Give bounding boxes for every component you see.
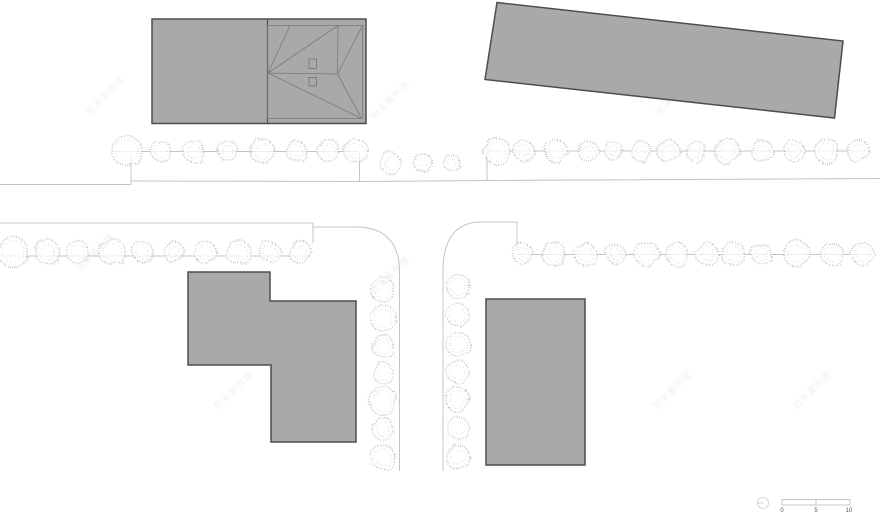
tree — [578, 141, 598, 161]
tree — [574, 243, 596, 265]
tree — [696, 243, 718, 265]
tree — [607, 245, 625, 263]
building-nw-roof-line — [338, 26, 339, 75]
tree — [605, 142, 623, 160]
trees-layer — [0, 136, 874, 469]
tree — [289, 241, 311, 263]
tree — [194, 241, 216, 263]
building-northwest — [152, 19, 366, 124]
tree — [373, 363, 393, 383]
buildings-layer — [152, 3, 843, 466]
tree — [784, 141, 804, 161]
tree — [752, 244, 772, 264]
tree — [847, 140, 869, 162]
tree-column-west — [369, 278, 397, 469]
site-plan-drawing — [0, 0, 880, 519]
tree — [260, 242, 280, 262]
tree — [414, 154, 432, 172]
building-southwest — [188, 272, 356, 442]
scale-bar — [758, 498, 851, 509]
street-north-edge — [0, 179, 880, 185]
tree — [821, 243, 843, 265]
tree — [372, 418, 394, 440]
tree-row-north-mid — [380, 153, 460, 173]
tree — [151, 141, 171, 161]
tree — [380, 153, 400, 173]
tree — [666, 243, 688, 265]
tree — [447, 361, 469, 383]
tree — [447, 417, 469, 439]
tree — [183, 140, 205, 162]
tree — [447, 304, 469, 326]
tree — [545, 140, 567, 162]
building-northeast — [485, 3, 843, 119]
tree-column-east — [446, 274, 470, 469]
roads-layer — [0, 151, 880, 471]
tree — [657, 140, 679, 162]
tree — [67, 241, 89, 263]
tree — [164, 242, 184, 262]
building-southeast — [486, 299, 585, 465]
tree — [286, 141, 306, 161]
tree — [444, 155, 460, 171]
tree — [751, 140, 773, 162]
tree — [513, 244, 533, 264]
tree — [631, 141, 651, 161]
tree — [686, 141, 706, 161]
tree — [218, 141, 238, 161]
tree — [514, 141, 534, 161]
tree — [133, 242, 153, 262]
tree — [372, 335, 394, 357]
tree — [318, 140, 340, 162]
tree — [852, 243, 874, 265]
site-plan-canvas: 0 5 10 知末案例馆知末案例馆知末案例馆知末案例馆知末案例馆知末案例馆知末案… — [0, 0, 880, 519]
tree-row-south-west — [0, 237, 311, 267]
